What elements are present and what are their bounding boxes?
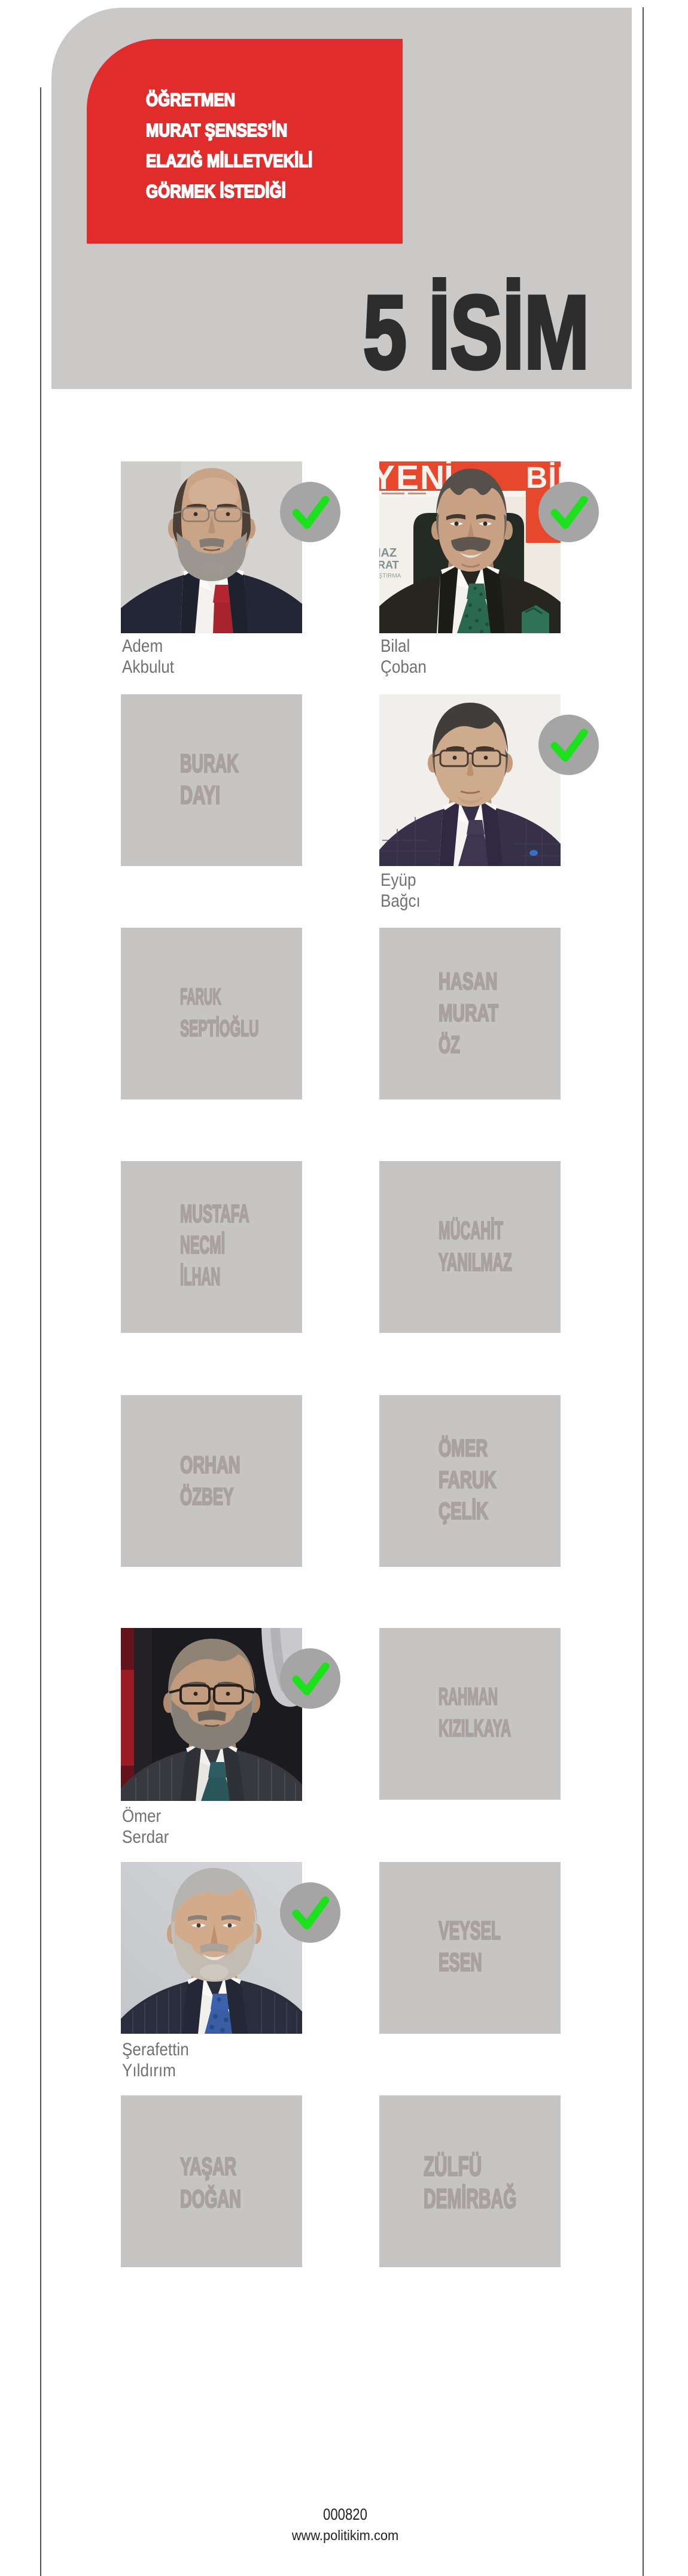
svg-text:HAZ: HAZ xyxy=(379,546,397,560)
svg-text:STRAT: STRAT xyxy=(379,559,399,571)
svg-text:ARAŞTIRMA: ARAŞTIRMA xyxy=(379,573,401,579)
